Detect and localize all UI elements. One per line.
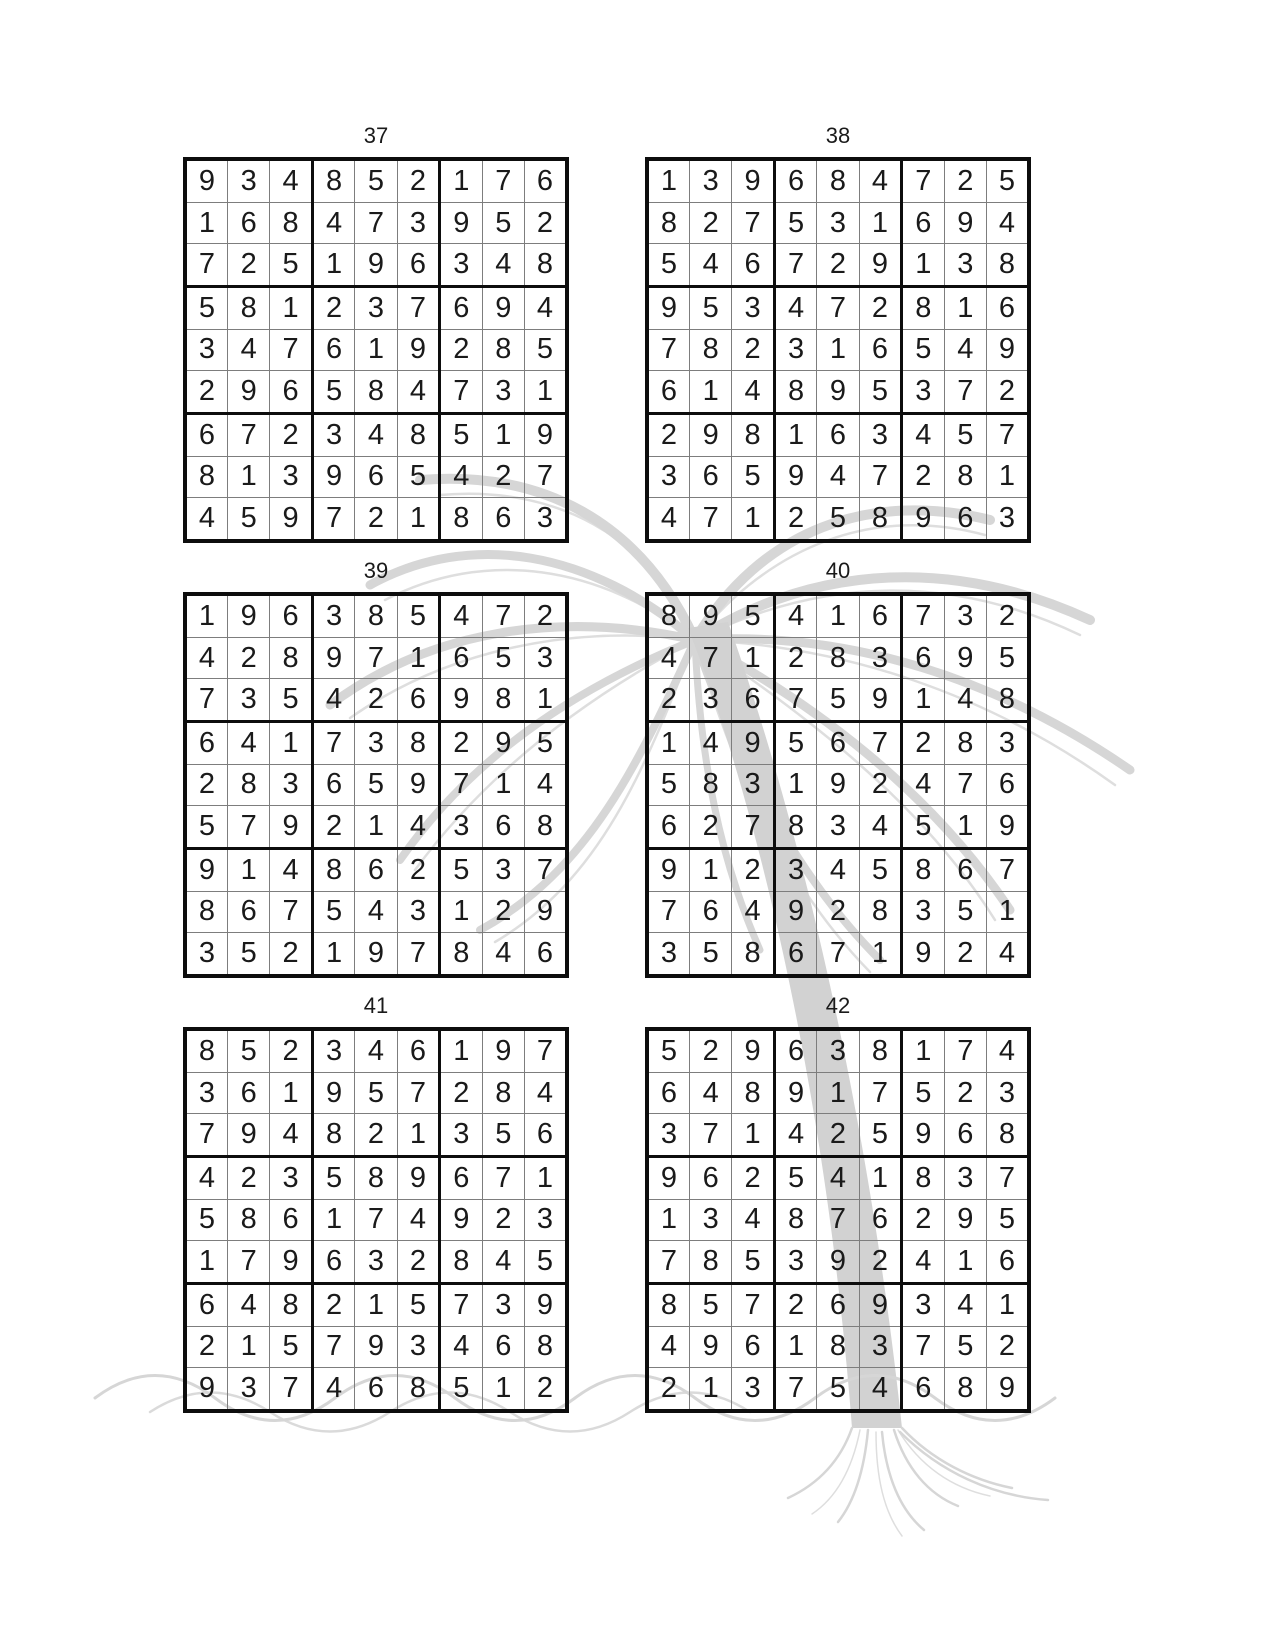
sudoku-cell: 7 xyxy=(227,413,269,456)
sudoku-cell: 8 xyxy=(732,413,774,456)
sudoku-cell: 1 xyxy=(817,1072,859,1113)
sudoku-cell: 8 xyxy=(355,594,397,637)
sudoku-cell: 1 xyxy=(902,1029,944,1072)
sudoku-cell: 6 xyxy=(397,244,439,287)
sudoku-cell: 1 xyxy=(817,329,859,370)
sudoku-cell: 3 xyxy=(397,891,439,932)
sudoku-cell: 4 xyxy=(397,1199,439,1240)
sudoku-cell: 7 xyxy=(312,1326,354,1367)
sudoku-cell: 1 xyxy=(774,1326,816,1367)
sudoku-cell: 8 xyxy=(817,637,859,678)
sudoku-cell: 9 xyxy=(525,891,568,932)
sudoku-cell: 7 xyxy=(227,1241,269,1284)
sudoku-cell: 3 xyxy=(525,1199,568,1240)
sudoku-cell: 3 xyxy=(270,764,312,805)
sudoku-cell: 2 xyxy=(525,202,568,243)
sudoku-cell: 8 xyxy=(689,1241,731,1284)
sudoku-cell: 4 xyxy=(647,498,689,541)
sudoku-cell: 3 xyxy=(397,1326,439,1367)
sudoku-cell: 5 xyxy=(774,722,816,765)
sudoku-cell: 9 xyxy=(312,456,354,497)
sudoku-cell: 3 xyxy=(525,637,568,678)
sudoku-cell: 9 xyxy=(185,1368,227,1411)
sudoku-cell: 1 xyxy=(355,1283,397,1326)
sudoku-cell: 4 xyxy=(902,1241,944,1284)
sudoku-cell: 1 xyxy=(525,371,568,414)
sudoku-cell: 3 xyxy=(312,594,354,637)
sudoku-cell: 5 xyxy=(859,848,901,891)
sudoku-cell: 6 xyxy=(732,679,774,722)
sudoku-cell: 6 xyxy=(482,498,524,541)
sudoku-cell: 2 xyxy=(440,1072,482,1113)
sudoku-cell: 9 xyxy=(270,498,312,541)
sudoku-cell: 5 xyxy=(774,1157,816,1200)
sudoku-cell: 3 xyxy=(185,1072,227,1113)
sudoku-cell: 4 xyxy=(817,1157,859,1200)
sudoku-cell: 9 xyxy=(732,722,774,765)
sudoku-cell: 2 xyxy=(525,594,568,637)
sudoku-cell: 1 xyxy=(227,456,269,497)
sudoku-cell: 6 xyxy=(227,891,269,932)
sudoku-cell: 2 xyxy=(732,848,774,891)
sudoku-cell: 9 xyxy=(185,848,227,891)
sudoku-cell: 6 xyxy=(944,498,986,541)
sudoku-cell: 9 xyxy=(859,679,901,722)
sudoku-cell: 9 xyxy=(647,1157,689,1200)
sudoku-cell: 5 xyxy=(185,806,227,849)
sudoku-cell: 8 xyxy=(817,1326,859,1367)
sudoku-cell: 3 xyxy=(185,329,227,370)
sudoku-cell: 2 xyxy=(312,1283,354,1326)
sudoku-cell: 1 xyxy=(859,1157,901,1200)
sudoku-cell: 1 xyxy=(944,1241,986,1284)
sudoku-cell: 1 xyxy=(944,806,986,849)
sudoku-cell: 8 xyxy=(525,1326,568,1367)
sudoku-cell: 4 xyxy=(647,1326,689,1367)
sudoku-cell: 6 xyxy=(689,1157,731,1200)
sudoku-cell: 3 xyxy=(482,1283,524,1326)
sudoku-cell: 1 xyxy=(482,764,524,805)
sudoku-cell: 6 xyxy=(482,806,524,849)
sudoku-cell: 3 xyxy=(774,848,816,891)
sudoku-cell: 4 xyxy=(689,722,731,765)
sudoku-cell: 4 xyxy=(525,1072,568,1113)
sudoku-cell: 9 xyxy=(817,764,859,805)
sudoku-cell: 5 xyxy=(817,1368,859,1411)
sudoku-cell: 4 xyxy=(732,1199,774,1240)
sudoku-cell: 7 xyxy=(732,202,774,243)
sudoku-cell: 5 xyxy=(774,202,816,243)
sudoku-cell: 3 xyxy=(440,806,482,849)
sudoku-cell: 5 xyxy=(355,764,397,805)
sudoku-cell: 9 xyxy=(525,1283,568,1326)
sudoku-cell: 2 xyxy=(987,1326,1030,1367)
sudoku-cell: 1 xyxy=(774,764,816,805)
sudoku-cell: 2 xyxy=(774,1283,816,1326)
sudoku-cell: 1 xyxy=(647,722,689,765)
sudoku-cell: 2 xyxy=(270,933,312,976)
sudoku-cell: 8 xyxy=(482,679,524,722)
sudoku-cell: 2 xyxy=(270,413,312,456)
sudoku-cell: 9 xyxy=(944,202,986,243)
sudoku-cell: 2 xyxy=(312,287,354,330)
sudoku-cell: 3 xyxy=(987,1072,1030,1113)
sudoku-cell: 2 xyxy=(689,806,731,849)
sudoku-cell: 8 xyxy=(312,848,354,891)
sudoku-grid-40: 8954167324712836952367591481495672835831… xyxy=(645,592,1031,978)
sudoku-cell: 4 xyxy=(185,637,227,678)
sudoku-cell: 3 xyxy=(859,637,901,678)
sudoku-cell: 9 xyxy=(944,1199,986,1240)
sudoku-cell: 5 xyxy=(227,498,269,541)
sudoku-cell: 4 xyxy=(482,933,524,976)
sudoku-cell: 7 xyxy=(859,722,901,765)
sudoku-cell: 2 xyxy=(397,848,439,891)
sudoku-cell: 6 xyxy=(525,159,568,202)
sudoku-cell: 2 xyxy=(270,1029,312,1072)
sudoku-cell: 9 xyxy=(525,413,568,456)
sudoku-cell: 8 xyxy=(647,594,689,637)
sudoku-cell: 5 xyxy=(987,1199,1030,1240)
sudoku-cell: 6 xyxy=(689,456,731,497)
sudoku-cell: 4 xyxy=(647,637,689,678)
sudoku-cell: 7 xyxy=(902,594,944,637)
sudoku-cell: 5 xyxy=(440,848,482,891)
sudoku-cell: 9 xyxy=(859,1283,901,1326)
sudoku-cell: 1 xyxy=(355,806,397,849)
sudoku-cell: 9 xyxy=(944,637,986,678)
sudoku-cell: 7 xyxy=(987,1157,1030,1200)
sudoku-cell: 5 xyxy=(440,413,482,456)
sudoku-cell: 8 xyxy=(859,1029,901,1072)
sudoku-cell: 3 xyxy=(355,722,397,765)
sudoku-cell: 5 xyxy=(227,933,269,976)
sudoku-cell: 7 xyxy=(689,1114,731,1157)
sudoku-cell: 6 xyxy=(270,594,312,637)
sudoku-cell: 7 xyxy=(817,933,859,976)
sudoku-cell: 8 xyxy=(689,764,731,805)
sudoku-cell: 6 xyxy=(227,202,269,243)
sudoku-cell: 1 xyxy=(270,287,312,330)
sudoku-cell: 2 xyxy=(397,1241,439,1284)
sudoku-cell: 2 xyxy=(902,1199,944,1240)
sudoku-cell: 4 xyxy=(944,329,986,370)
sudoku-cell: 8 xyxy=(774,371,816,414)
sudoku-cell: 5 xyxy=(482,637,524,678)
puzzle-37: 37 9348521761684739527251963485812376943… xyxy=(183,122,569,543)
sudoku-cell: 6 xyxy=(355,1368,397,1411)
sudoku-cell: 3 xyxy=(355,1241,397,1284)
sudoku-cell: 2 xyxy=(859,1241,901,1284)
puzzle-40: 40 8954167324712836952367591481495672835… xyxy=(645,557,1031,978)
sudoku-cell: 3 xyxy=(482,371,524,414)
sudoku-cell: 8 xyxy=(185,456,227,497)
sudoku-cell: 5 xyxy=(185,1199,227,1240)
sudoku-cell: 8 xyxy=(817,159,859,202)
sudoku-cell: 3 xyxy=(774,1241,816,1284)
sudoku-cell: 1 xyxy=(689,848,731,891)
sudoku-cell: 6 xyxy=(732,1326,774,1367)
sudoku-cell: 4 xyxy=(525,287,568,330)
sudoku-cell: 7 xyxy=(774,679,816,722)
sudoku-cell: 6 xyxy=(902,202,944,243)
sudoku-cell: 1 xyxy=(987,891,1030,932)
sudoku-cell: 9 xyxy=(774,456,816,497)
sudoku-cell: 8 xyxy=(944,722,986,765)
sudoku-cell: 8 xyxy=(440,933,482,976)
sudoku-cell: 8 xyxy=(355,371,397,414)
sudoku-cell: 7 xyxy=(482,159,524,202)
sudoku-cell: 2 xyxy=(312,806,354,849)
sudoku-cell: 2 xyxy=(944,933,986,976)
sudoku-cell: 8 xyxy=(482,1072,524,1113)
sudoku-cell: 8 xyxy=(732,933,774,976)
sudoku-cell: 8 xyxy=(859,498,901,541)
sudoku-cell: 4 xyxy=(525,764,568,805)
sudoku-cell: 6 xyxy=(185,413,227,456)
sudoku-cell: 2 xyxy=(440,722,482,765)
sudoku-cell: 7 xyxy=(440,764,482,805)
sudoku-cell: 8 xyxy=(397,1368,439,1411)
sudoku-cell: 4 xyxy=(689,244,731,287)
sudoku-cell: 7 xyxy=(397,287,439,330)
sudoku-cell: 9 xyxy=(482,287,524,330)
puzzle-number-label: 40 xyxy=(645,557,1031,585)
sudoku-cell: 8 xyxy=(525,244,568,287)
sudoku-cell: 3 xyxy=(732,764,774,805)
sudoku-cell: 5 xyxy=(944,1326,986,1367)
sudoku-cell: 1 xyxy=(227,848,269,891)
sudoku-cell: 7 xyxy=(270,1368,312,1411)
sudoku-cell: 5 xyxy=(525,722,568,765)
sudoku-cell: 4 xyxy=(355,413,397,456)
sudoku-cell: 6 xyxy=(440,637,482,678)
puzzle-number-label: 39 xyxy=(183,557,569,585)
sudoku-cell: 6 xyxy=(482,1326,524,1367)
sudoku-cell: 6 xyxy=(312,1241,354,1284)
sudoku-cell: 5 xyxy=(525,1241,568,1284)
sudoku-cell: 2 xyxy=(774,498,816,541)
sudoku-cell: 5 xyxy=(397,456,439,497)
sudoku-cell: 8 xyxy=(944,1368,986,1411)
sudoku-cell: 4 xyxy=(312,202,354,243)
sudoku-cell: 8 xyxy=(185,891,227,932)
sudoku-cell: 1 xyxy=(987,456,1030,497)
sudoku-cell: 8 xyxy=(647,1283,689,1326)
sudoku-cell: 6 xyxy=(397,679,439,722)
sudoku-cell: 8 xyxy=(312,1114,354,1157)
sudoku-grid-42: 5296381746489175233714259689625418371348… xyxy=(645,1027,1031,1413)
sudoku-cell: 3 xyxy=(525,498,568,541)
sudoku-cell: 5 xyxy=(440,1368,482,1411)
sudoku-cell: 8 xyxy=(440,1241,482,1284)
sudoku-cell: 9 xyxy=(270,1241,312,1284)
sudoku-cell: 5 xyxy=(732,1241,774,1284)
sudoku-cell: 7 xyxy=(859,1072,901,1113)
sudoku-cell: 5 xyxy=(270,679,312,722)
sudoku-cell: 1 xyxy=(397,498,439,541)
sudoku-cell: 2 xyxy=(689,1029,731,1072)
sudoku-cell: 9 xyxy=(647,848,689,891)
sudoku-cell: 6 xyxy=(817,413,859,456)
sudoku-cell: 6 xyxy=(185,722,227,765)
sudoku-cell: 5 xyxy=(902,1072,944,1113)
sudoku-cell: 9 xyxy=(440,1199,482,1240)
sudoku-cell: 9 xyxy=(482,1029,524,1072)
sudoku-cell: 8 xyxy=(774,1199,816,1240)
sudoku-cell: 4 xyxy=(859,806,901,849)
sudoku-cell: 5 xyxy=(987,637,1030,678)
sudoku-cell: 5 xyxy=(944,891,986,932)
sudoku-cell: 3 xyxy=(227,679,269,722)
sudoku-cell: 8 xyxy=(185,1029,227,1072)
puzzle-number-label: 42 xyxy=(645,992,1031,1020)
sudoku-cell: 9 xyxy=(902,1114,944,1157)
sudoku-cell: 3 xyxy=(987,722,1030,765)
sudoku-cell: 1 xyxy=(689,371,731,414)
sudoku-cell: 6 xyxy=(732,244,774,287)
sudoku-cell: 7 xyxy=(859,456,901,497)
sudoku-grid-39: 1963854724289716537354269816417382952836… xyxy=(183,592,569,978)
sudoku-cell: 8 xyxy=(227,764,269,805)
sudoku-cell: 1 xyxy=(859,202,901,243)
sudoku-cell: 2 xyxy=(355,498,397,541)
sudoku-cell: 4 xyxy=(944,679,986,722)
sudoku-cell: 8 xyxy=(525,806,568,849)
sudoku-cell: 7 xyxy=(270,891,312,932)
puzzle-39: 39 1963854724289716537354269816417382952… xyxy=(183,557,569,978)
sudoku-cell: 9 xyxy=(355,933,397,976)
sudoku-cell: 4 xyxy=(689,1072,731,1113)
sudoku-cell: 9 xyxy=(732,159,774,202)
sudoku-cell: 6 xyxy=(987,764,1030,805)
sudoku-grid-38: 1396847258275316945467291389534728167823… xyxy=(645,157,1031,543)
sudoku-cell: 2 xyxy=(817,244,859,287)
sudoku-cell: 1 xyxy=(647,1199,689,1240)
sudoku-cell: 2 xyxy=(227,637,269,678)
sudoku-cell: 7 xyxy=(482,1157,524,1200)
sudoku-cell: 6 xyxy=(440,287,482,330)
sudoku-cell: 8 xyxy=(440,498,482,541)
sudoku-cell: 3 xyxy=(689,1199,731,1240)
sudoku-cell: 6 xyxy=(859,1199,901,1240)
sudoku-cell: 6 xyxy=(817,1283,859,1326)
sudoku-cell: 5 xyxy=(185,287,227,330)
sudoku-cell: 2 xyxy=(482,1199,524,1240)
sudoku-cell: 9 xyxy=(440,679,482,722)
sudoku-cell: 1 xyxy=(525,679,568,722)
sudoku-cell: 5 xyxy=(902,806,944,849)
sudoku-cell: 3 xyxy=(859,1326,901,1367)
sudoku-cell: 4 xyxy=(987,1029,1030,1072)
sudoku-cell: 6 xyxy=(647,806,689,849)
sudoku-cell: 6 xyxy=(774,159,816,202)
sudoku-cell: 2 xyxy=(482,456,524,497)
sudoku-cell: 1 xyxy=(440,159,482,202)
sudoku-cell: 4 xyxy=(774,594,816,637)
sudoku-cell: 7 xyxy=(440,1283,482,1326)
sudoku-cell: 6 xyxy=(987,287,1030,330)
puzzle-38: 38 1396847258275316945467291389534728167… xyxy=(645,122,1031,543)
sudoku-cell: 9 xyxy=(397,329,439,370)
sudoku-cell: 4 xyxy=(440,594,482,637)
sudoku-cell: 6 xyxy=(525,933,568,976)
sudoku-cell: 7 xyxy=(185,1114,227,1157)
sudoku-cell: 1 xyxy=(270,1072,312,1113)
sudoku-cell: 5 xyxy=(689,287,731,330)
sudoku-cell: 9 xyxy=(987,806,1030,849)
sudoku-cell: 3 xyxy=(817,1029,859,1072)
sudoku-cell: 3 xyxy=(647,1114,689,1157)
sudoku-cell: 6 xyxy=(944,848,986,891)
sudoku-cell: 3 xyxy=(647,933,689,976)
sudoku-cell: 5 xyxy=(859,371,901,414)
sudoku-cell: 1 xyxy=(944,287,986,330)
sudoku-cell: 6 xyxy=(987,1241,1030,1284)
sudoku-cell: 3 xyxy=(689,679,731,722)
sudoku-cell: 6 xyxy=(355,456,397,497)
sudoku-cell: 6 xyxy=(774,933,816,976)
sudoku-cell: 7 xyxy=(732,1283,774,1326)
sudoku-cell: 8 xyxy=(647,202,689,243)
sudoku-cell: 2 xyxy=(987,594,1030,637)
sudoku-cell: 4 xyxy=(482,1241,524,1284)
sudoku-cell: 4 xyxy=(397,806,439,849)
sudoku-cell: 4 xyxy=(355,1029,397,1072)
sudoku-cell: 9 xyxy=(732,1029,774,1072)
sudoku-cell: 9 xyxy=(355,1326,397,1367)
sudoku-cell: 6 xyxy=(647,371,689,414)
sudoku-cell: 1 xyxy=(312,933,354,976)
sudoku-cell: 1 xyxy=(859,933,901,976)
sudoku-cell: 1 xyxy=(902,679,944,722)
sudoku-cell: 2 xyxy=(987,371,1030,414)
sudoku-cell: 6 xyxy=(312,329,354,370)
sudoku-cell: 7 xyxy=(944,371,986,414)
sudoku-cell: 1 xyxy=(987,1283,1030,1326)
sudoku-cell: 2 xyxy=(859,287,901,330)
sudoku-cell: 7 xyxy=(774,1368,816,1411)
sudoku-cell: 5 xyxy=(397,1283,439,1326)
sudoku-cell: 8 xyxy=(987,679,1030,722)
sudoku-cell: 8 xyxy=(312,159,354,202)
sudoku-cell: 2 xyxy=(185,371,227,414)
sudoku-cell: 3 xyxy=(987,498,1030,541)
sudoku-cell: 3 xyxy=(859,413,901,456)
sudoku-cell: 1 xyxy=(732,637,774,678)
sudoku-cell: 3 xyxy=(312,1029,354,1072)
sudoku-cell: 1 xyxy=(774,413,816,456)
sudoku-cell: 3 xyxy=(227,159,269,202)
sudoku-cell: 5 xyxy=(312,1157,354,1200)
sudoku-cell: 2 xyxy=(817,1114,859,1157)
sudoku-cell: 5 xyxy=(312,371,354,414)
sudoku-cell: 4 xyxy=(397,371,439,414)
sudoku-cell: 7 xyxy=(397,1072,439,1113)
sudoku-cell: 8 xyxy=(482,329,524,370)
sudoku-cell: 3 xyxy=(397,202,439,243)
sudoku-cell: 7 xyxy=(689,637,731,678)
sudoku-cell: 1 xyxy=(440,891,482,932)
sudoku-cell: 3 xyxy=(270,1157,312,1200)
puzzle-number-label: 37 xyxy=(183,122,569,150)
sudoku-grid-41: 8523461973619572847948213564235896715861… xyxy=(183,1027,569,1413)
sudoku-cell: 6 xyxy=(397,1029,439,1072)
sudoku-cell: 5 xyxy=(270,1326,312,1367)
sudoku-cell: 1 xyxy=(312,1199,354,1240)
sudoku-cell: 1 xyxy=(185,594,227,637)
sudoku-cell: 9 xyxy=(817,371,859,414)
